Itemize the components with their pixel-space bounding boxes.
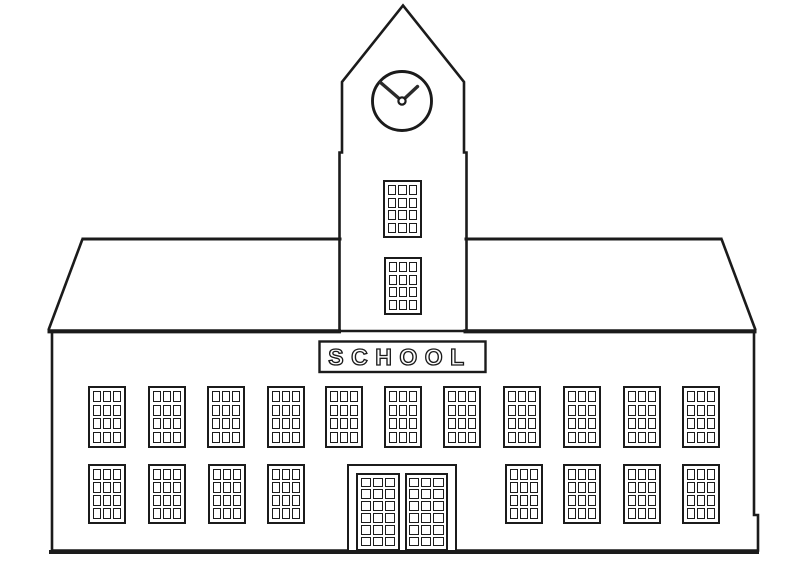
door-pane [409,478,419,488]
lower-row-window [88,464,126,524]
window-pane [578,469,586,480]
door-pane [361,525,371,535]
window-pane [163,391,171,402]
window-pane [648,469,656,480]
window-pane [687,418,695,429]
window-pane [272,418,280,429]
door-pane [385,478,395,488]
window-pane [103,508,111,519]
window-pane [388,185,396,195]
tower-lower-window [384,257,422,315]
window-pane [518,432,526,443]
window-pane [518,418,526,429]
window-pane [223,508,231,519]
window-pane [153,432,161,443]
window-pane [648,391,656,402]
window-pane [638,391,646,402]
window-pane [340,418,348,429]
window-pane [448,391,456,402]
window-pane [163,508,171,519]
window-pane [173,482,181,493]
door-pane [433,537,443,547]
window-pane [103,495,111,506]
door-pane [421,513,431,523]
window-pane [389,418,397,429]
window-pane [272,495,280,506]
window-pane [707,418,715,429]
window-pane [153,418,161,429]
window-pane [707,405,715,416]
window-pane [292,418,300,429]
upper-row-window [384,386,422,448]
window-pane [282,508,290,519]
window-pane [223,482,231,493]
window-pane [508,418,516,429]
window-pane [103,418,111,429]
window-pane [113,432,121,443]
door-pane [361,501,371,511]
window-pane [510,508,518,519]
door-pane [361,537,371,547]
door-pane [373,501,383,511]
window-pane [93,508,101,519]
door-pane [433,525,443,535]
door-pane [385,501,395,511]
window-pane [707,495,715,506]
window-pane [697,495,705,506]
window-pane [113,469,121,480]
door-pane [421,489,431,499]
window-pane [530,495,538,506]
door-pane [373,478,383,488]
door-pane [409,537,419,547]
window-pane [638,508,646,519]
window-pane [232,391,240,402]
window-pane [687,405,695,416]
window-pane [568,508,576,519]
window-pane [628,432,636,443]
window-pane [223,495,231,506]
window-pane [508,405,516,416]
door-leaf [356,473,400,551]
window-pane [409,185,417,195]
window-pane [388,210,396,220]
door-pane [385,525,395,535]
window-pane [588,508,596,519]
window-pane [687,469,695,480]
window-pane [448,418,456,429]
window-pane [458,432,466,443]
window-pane [697,405,705,416]
building-base-line [49,550,759,554]
window-pane [448,405,456,416]
window-pane [163,418,171,429]
door-pane [409,501,419,511]
door-pane [373,525,383,535]
window-pane [468,418,476,429]
window-pane [578,391,586,402]
door-pane [385,513,395,523]
window-pane [568,469,576,480]
window-pane [628,495,636,506]
door-pane [361,513,371,523]
window-pane [520,495,528,506]
window-pane [93,469,101,480]
window-pane [638,469,646,480]
window-pane [588,405,596,416]
window-pane [520,482,528,493]
window-pane [212,432,220,443]
window-pane [389,432,397,443]
window-pane [687,432,695,443]
window-pane [153,469,161,480]
window-pane [578,405,586,416]
window-pane [399,405,407,416]
door-pane [409,489,419,499]
window-pane [628,482,636,493]
window-pane [163,405,171,416]
window-pane [272,482,280,493]
window-pane [213,495,221,506]
window-pane [448,432,456,443]
window-pane [350,432,358,443]
window-pane [520,508,528,519]
window-pane [510,469,518,480]
window-pane [163,469,171,480]
upper-row-window [325,386,363,448]
window-pane [648,432,656,443]
window-pane [350,418,358,429]
window-pane [697,432,705,443]
window-pane [468,432,476,443]
window-pane [638,432,646,443]
window-pane [153,508,161,519]
window-pane [409,275,417,285]
lower-row-window [623,464,661,524]
window-pane [292,391,300,402]
window-pane [697,482,705,493]
window-pane [282,432,290,443]
door-pane [361,478,371,488]
window-pane [222,418,230,429]
window-pane [272,405,280,416]
window-pane [638,482,646,493]
door-pane [385,537,395,547]
window-pane [628,508,636,519]
window-pane [222,391,230,402]
window-pane [409,223,417,233]
window-pane [648,495,656,506]
window-pane [628,469,636,480]
window-pane [93,418,101,429]
window-pane [399,432,407,443]
window-pane [530,469,538,480]
lower-row-window [148,464,186,524]
door-pane [421,537,431,547]
window-pane [282,469,290,480]
window-pane [173,432,181,443]
window-pane [399,300,407,310]
window-pane [707,469,715,480]
window-pane [232,432,240,443]
window-pane [292,495,300,506]
window-pane [508,432,516,443]
window-pane [233,495,241,506]
door-pane [373,537,383,547]
window-pane [340,432,348,443]
window-pane [272,432,280,443]
window-pane [330,391,338,402]
window-pane [282,495,290,506]
window-pane [458,405,466,416]
lower-row-window [208,464,246,524]
window-pane [588,418,596,429]
window-pane [707,482,715,493]
window-pane [520,469,528,480]
door-pane [421,478,431,488]
window-pane [113,508,121,519]
door-leaf [405,473,449,551]
window-pane [697,469,705,480]
window-pane [578,482,586,493]
window-pane [468,391,476,402]
window-pane [528,432,536,443]
window-pane [233,469,241,480]
window-pane [458,391,466,402]
window-pane [282,391,290,402]
window-pane [103,432,111,443]
lower-row-window [563,464,601,524]
window-pane [272,508,280,519]
window-pane [103,405,111,416]
window-pane [173,508,181,519]
upper-row-window [503,386,541,448]
window-pane [113,482,121,493]
coloring-page: SCHOOL [0,0,800,566]
upper-row-window [88,386,126,448]
window-pane [212,418,220,429]
window-pane [398,185,406,195]
window-pane [697,418,705,429]
window-pane [292,405,300,416]
window-pane [153,405,161,416]
window-pane [409,391,417,402]
window-pane [399,391,407,402]
window-pane [212,391,220,402]
lower-row-window [267,464,305,524]
window-pane [628,391,636,402]
window-pane [93,495,101,506]
window-pane [292,508,300,519]
window-pane [648,418,656,429]
window-pane [213,469,221,480]
door-pane [373,489,383,499]
window-pane [687,508,695,519]
door-pane [421,525,431,535]
door-pane [433,501,443,511]
window-pane [568,482,576,493]
window-pane [568,418,576,429]
window-pane [163,482,171,493]
window-pane [153,482,161,493]
window-pane [213,482,221,493]
window-pane [398,210,406,220]
window-pane [568,432,576,443]
window-pane [113,418,121,429]
window-pane [409,198,417,208]
window-pane [409,210,417,220]
window-pane [389,300,397,310]
window-pane [578,508,586,519]
window-pane [687,495,695,506]
window-pane [282,482,290,493]
window-pane [528,418,536,429]
window-pane [628,418,636,429]
door-pane [433,489,443,499]
window-pane [409,262,417,272]
window-pane [223,469,231,480]
window-pane [648,405,656,416]
lower-row-window [682,464,720,524]
window-pane [518,405,526,416]
window-pane [409,418,417,429]
window-pane [103,391,111,402]
window-pane [388,223,396,233]
window-pane [399,275,407,285]
window-pane [103,482,111,493]
window-pane [508,391,516,402]
door-pane [409,513,419,523]
upper-row-window [207,386,245,448]
window-pane [409,405,417,416]
window-pane [173,405,181,416]
window-pane [173,391,181,402]
upper-row-window [148,386,186,448]
window-pane [697,508,705,519]
window-pane [409,287,417,297]
lower-row-window [505,464,543,524]
door-pane [433,478,443,488]
window-pane [588,469,596,480]
window-pane [707,391,715,402]
window-pane [389,287,397,297]
window-pane [340,391,348,402]
window-pane [530,482,538,493]
upper-row-window [443,386,481,448]
window-pane [528,405,536,416]
window-pane [222,432,230,443]
window-pane [113,391,121,402]
upper-row-window [623,386,661,448]
window-pane [93,391,101,402]
window-pane [638,495,646,506]
window-pane [233,482,241,493]
window-pane [330,418,338,429]
window-pane [340,405,348,416]
door-pane [373,513,383,523]
window-pane [93,432,101,443]
window-pane [232,418,240,429]
window-pane [578,418,586,429]
window-pane [213,508,221,519]
window-pane [588,495,596,506]
window-pane [628,405,636,416]
window-pane [233,508,241,519]
window-pane [588,432,596,443]
window-pane [399,287,407,297]
window-pane [389,391,397,402]
tower-upper-window [383,180,422,238]
window-pane [638,418,646,429]
window-pane [272,391,280,402]
window-pane [330,432,338,443]
window-pane [707,432,715,443]
upper-row-window [267,386,305,448]
window-pane [707,508,715,519]
window-pane [399,418,407,429]
window-pane [93,405,101,416]
window-pane [578,432,586,443]
upper-row-window [682,386,720,448]
window-pane [510,495,518,506]
window-pane [388,198,396,208]
window-pane [530,508,538,519]
window-pane [292,469,300,480]
window-pane [687,391,695,402]
door-pane [433,513,443,523]
window-pane [648,508,656,519]
window-pane [232,405,240,416]
window-pane [173,418,181,429]
window-pane [697,391,705,402]
door-pane [409,525,419,535]
window-pane [153,391,161,402]
door-pane [361,489,371,499]
window-pane [468,405,476,416]
window-pane [282,405,290,416]
window-pane [578,495,586,506]
window-pane [113,495,121,506]
window-pane [389,275,397,285]
window-pane [292,482,300,493]
window-pane [222,405,230,416]
window-pane [113,405,121,416]
window-pane [399,262,407,272]
window-pane [409,432,417,443]
window-pane [389,262,397,272]
window-pane [93,482,101,493]
window-pane [588,482,596,493]
window-pane [568,405,576,416]
window-pane [398,223,406,233]
window-pane [330,405,338,416]
upper-row-window [563,386,601,448]
window-pane [163,432,171,443]
door-pane [421,501,431,511]
window-pane [568,391,576,402]
window-pane [272,469,280,480]
door-pane [385,489,395,499]
window-pane [510,482,518,493]
window-pane [212,405,220,416]
window-pane [518,391,526,402]
window-pane [103,469,111,480]
window-pane [282,418,290,429]
window-pane [163,495,171,506]
window-pane [648,482,656,493]
window-pane [350,405,358,416]
entrance-door-frame [347,464,457,551]
